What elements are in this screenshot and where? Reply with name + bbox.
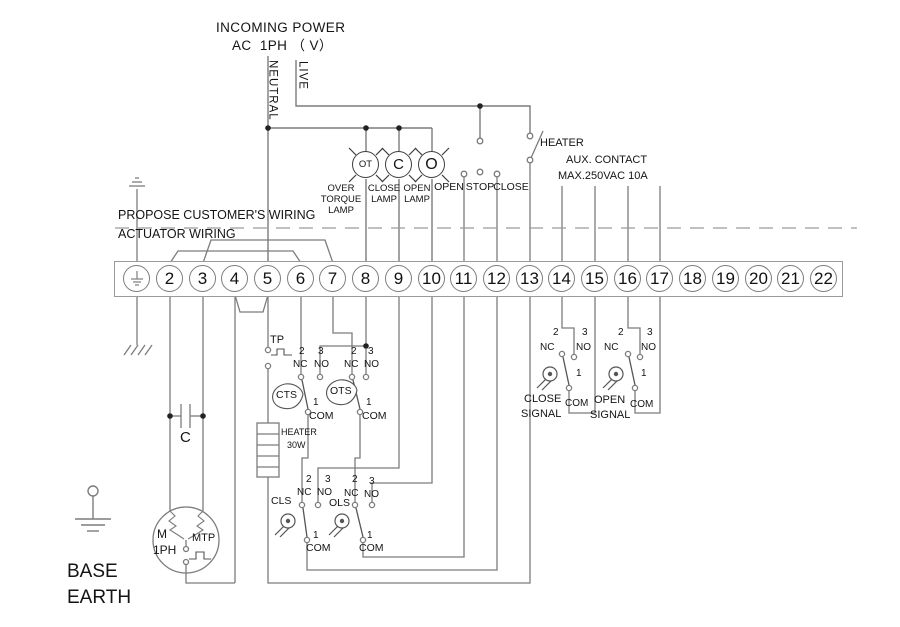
close-signal-no-number: 3 <box>582 328 588 339</box>
ols-no-label: NO <box>364 490 379 501</box>
terminal-5: 5 <box>254 265 281 292</box>
aux-contact-label: AUX. CONTACT <box>566 155 647 167</box>
terminal-11: 11 <box>450 265 477 292</box>
terminal-7: 7 <box>319 265 346 292</box>
terminal-16: 16 <box>614 265 641 292</box>
ols-com-number: 1 <box>367 531 373 542</box>
open-lamp-icon: O <box>418 151 445 178</box>
heater-label: HEATER <box>540 138 584 150</box>
pushbutton-contacts <box>461 138 500 263</box>
cts-nc-number: 2 <box>299 347 305 358</box>
ols-com-label: COM <box>359 543 384 554</box>
ots-label: OTS <box>330 386 352 397</box>
cts-com-label: COM <box>309 411 334 422</box>
terminal-earth <box>123 265 150 292</box>
cls-com-number: 1 <box>313 531 319 542</box>
base-earth-label-2: EARTH <box>67 588 131 609</box>
heater-chain <box>257 295 530 583</box>
ots-nc-label: NC <box>344 360 358 371</box>
motor-m-label: M <box>157 528 167 541</box>
terminal-15: 15 <box>581 265 608 292</box>
terminal-9: 9 <box>385 265 412 292</box>
cts-no-number: 3 <box>318 347 324 358</box>
close-button-label: CLOSE <box>481 182 541 193</box>
close-signal-nc-label: NC <box>540 343 554 354</box>
terminal-12: 12 <box>483 265 510 292</box>
terminal-22: 22 <box>810 265 837 292</box>
terminal-6: 6 <box>287 265 314 292</box>
open-signal-no-label: NO <box>641 343 656 354</box>
actuator-wiring-label: ACTUATOR WIRING <box>118 228 236 242</box>
open-signal-com-number: 1 <box>641 369 647 380</box>
cts-no-label: NO <box>314 360 329 371</box>
terminal-14: 14 <box>548 265 575 292</box>
ots-nc-number: 2 <box>351 347 357 358</box>
terminal-21: 21 <box>777 265 804 292</box>
capacitor-label: C <box>180 430 191 446</box>
ots-com-number: 1 <box>366 398 372 409</box>
motor-mtp-label: MTP <box>192 533 215 545</box>
open-lamp-label-2: LAMP <box>387 195 447 205</box>
close-signal-com-number: 1 <box>576 369 582 380</box>
heater-switch <box>527 131 543 263</box>
ots-com-label: COM <box>362 411 387 422</box>
terminal-8: 8 <box>352 265 379 292</box>
heater-30w-label-2: 30W <box>287 441 306 451</box>
cts-com-number: 1 <box>313 398 319 409</box>
cls-no-number: 3 <box>325 475 331 486</box>
close-signal-label-2: SIGNAL <box>521 409 561 421</box>
base-earth-symbol <box>75 486 111 531</box>
terminal-10: 10 <box>418 265 445 292</box>
over-torque-lamp-label-3: LAMP <box>311 206 371 216</box>
aux-contact-rating: MAX.250VAC 10A <box>558 171 648 183</box>
terminal-3: 3 <box>189 265 216 292</box>
ols-label: OLS <box>329 498 350 509</box>
close-signal-label-1: CLOSE <box>524 394 561 406</box>
cls-nc-number: 2 <box>306 475 312 486</box>
neutral-label: NEUTRAL <box>266 60 278 121</box>
terminal-20: 20 <box>745 265 772 292</box>
heater-30w-label-1: HEATER <box>281 428 317 438</box>
over-torque-lamp-icon: OT <box>352 151 379 178</box>
base-earth-label-1: BASE <box>67 562 118 583</box>
open-signal-label-1: OPEN <box>594 395 625 407</box>
cts-nc-label: NC <box>293 360 307 371</box>
wiring-diagram: 2 3 4 5 6 7 8 9 10 11 12 13 14 15 16 17 … <box>0 0 900 627</box>
tp-label: TP <box>270 335 284 347</box>
motor-1ph-label: 1PH <box>153 544 176 557</box>
ots-no-label: NO <box>364 360 379 371</box>
wiring-svg <box>0 0 900 627</box>
terminal-13: 13 <box>516 265 543 292</box>
aux-contact-stubs <box>562 186 660 263</box>
terminal-17: 17 <box>646 265 673 292</box>
cls-nc-label: NC <box>297 488 311 499</box>
open-signal-nc-label: NC <box>604 343 618 354</box>
open-signal-no-number: 3 <box>647 328 653 339</box>
close-signal-com-label: COM <box>565 399 588 410</box>
close-lamp-icon: C <box>385 151 412 178</box>
cts-label: CTS <box>276 390 297 401</box>
earth-icon <box>128 269 146 289</box>
ols-nc-number: 2 <box>352 475 358 486</box>
terminal-18: 18 <box>679 265 706 292</box>
open-signal-com-label: COM <box>630 400 653 411</box>
live-label: LIVE <box>296 61 308 90</box>
open-signal-nc-number: 2 <box>618 328 624 339</box>
open-signal-label-2: SIGNAL <box>590 410 630 422</box>
close-signal-no-label: NO <box>576 343 591 354</box>
cls-com-label: COM <box>306 543 331 554</box>
terminal-4: 4 <box>221 265 248 292</box>
customer-wiring-label: PROPOSE CUSTOMER'S WIRING <box>118 209 315 223</box>
close-signal-nc-number: 2 <box>553 328 559 339</box>
ols-no-number: 3 <box>369 477 375 488</box>
incoming-power-spec: AC 1PH （ V） <box>232 39 333 54</box>
cls-label: CLS <box>271 496 291 507</box>
terminal-19: 19 <box>712 265 739 292</box>
ots-no-number: 3 <box>368 347 374 358</box>
terminal-2: 2 <box>156 265 183 292</box>
incoming-power-title: INCOMING POWER <box>216 21 345 36</box>
